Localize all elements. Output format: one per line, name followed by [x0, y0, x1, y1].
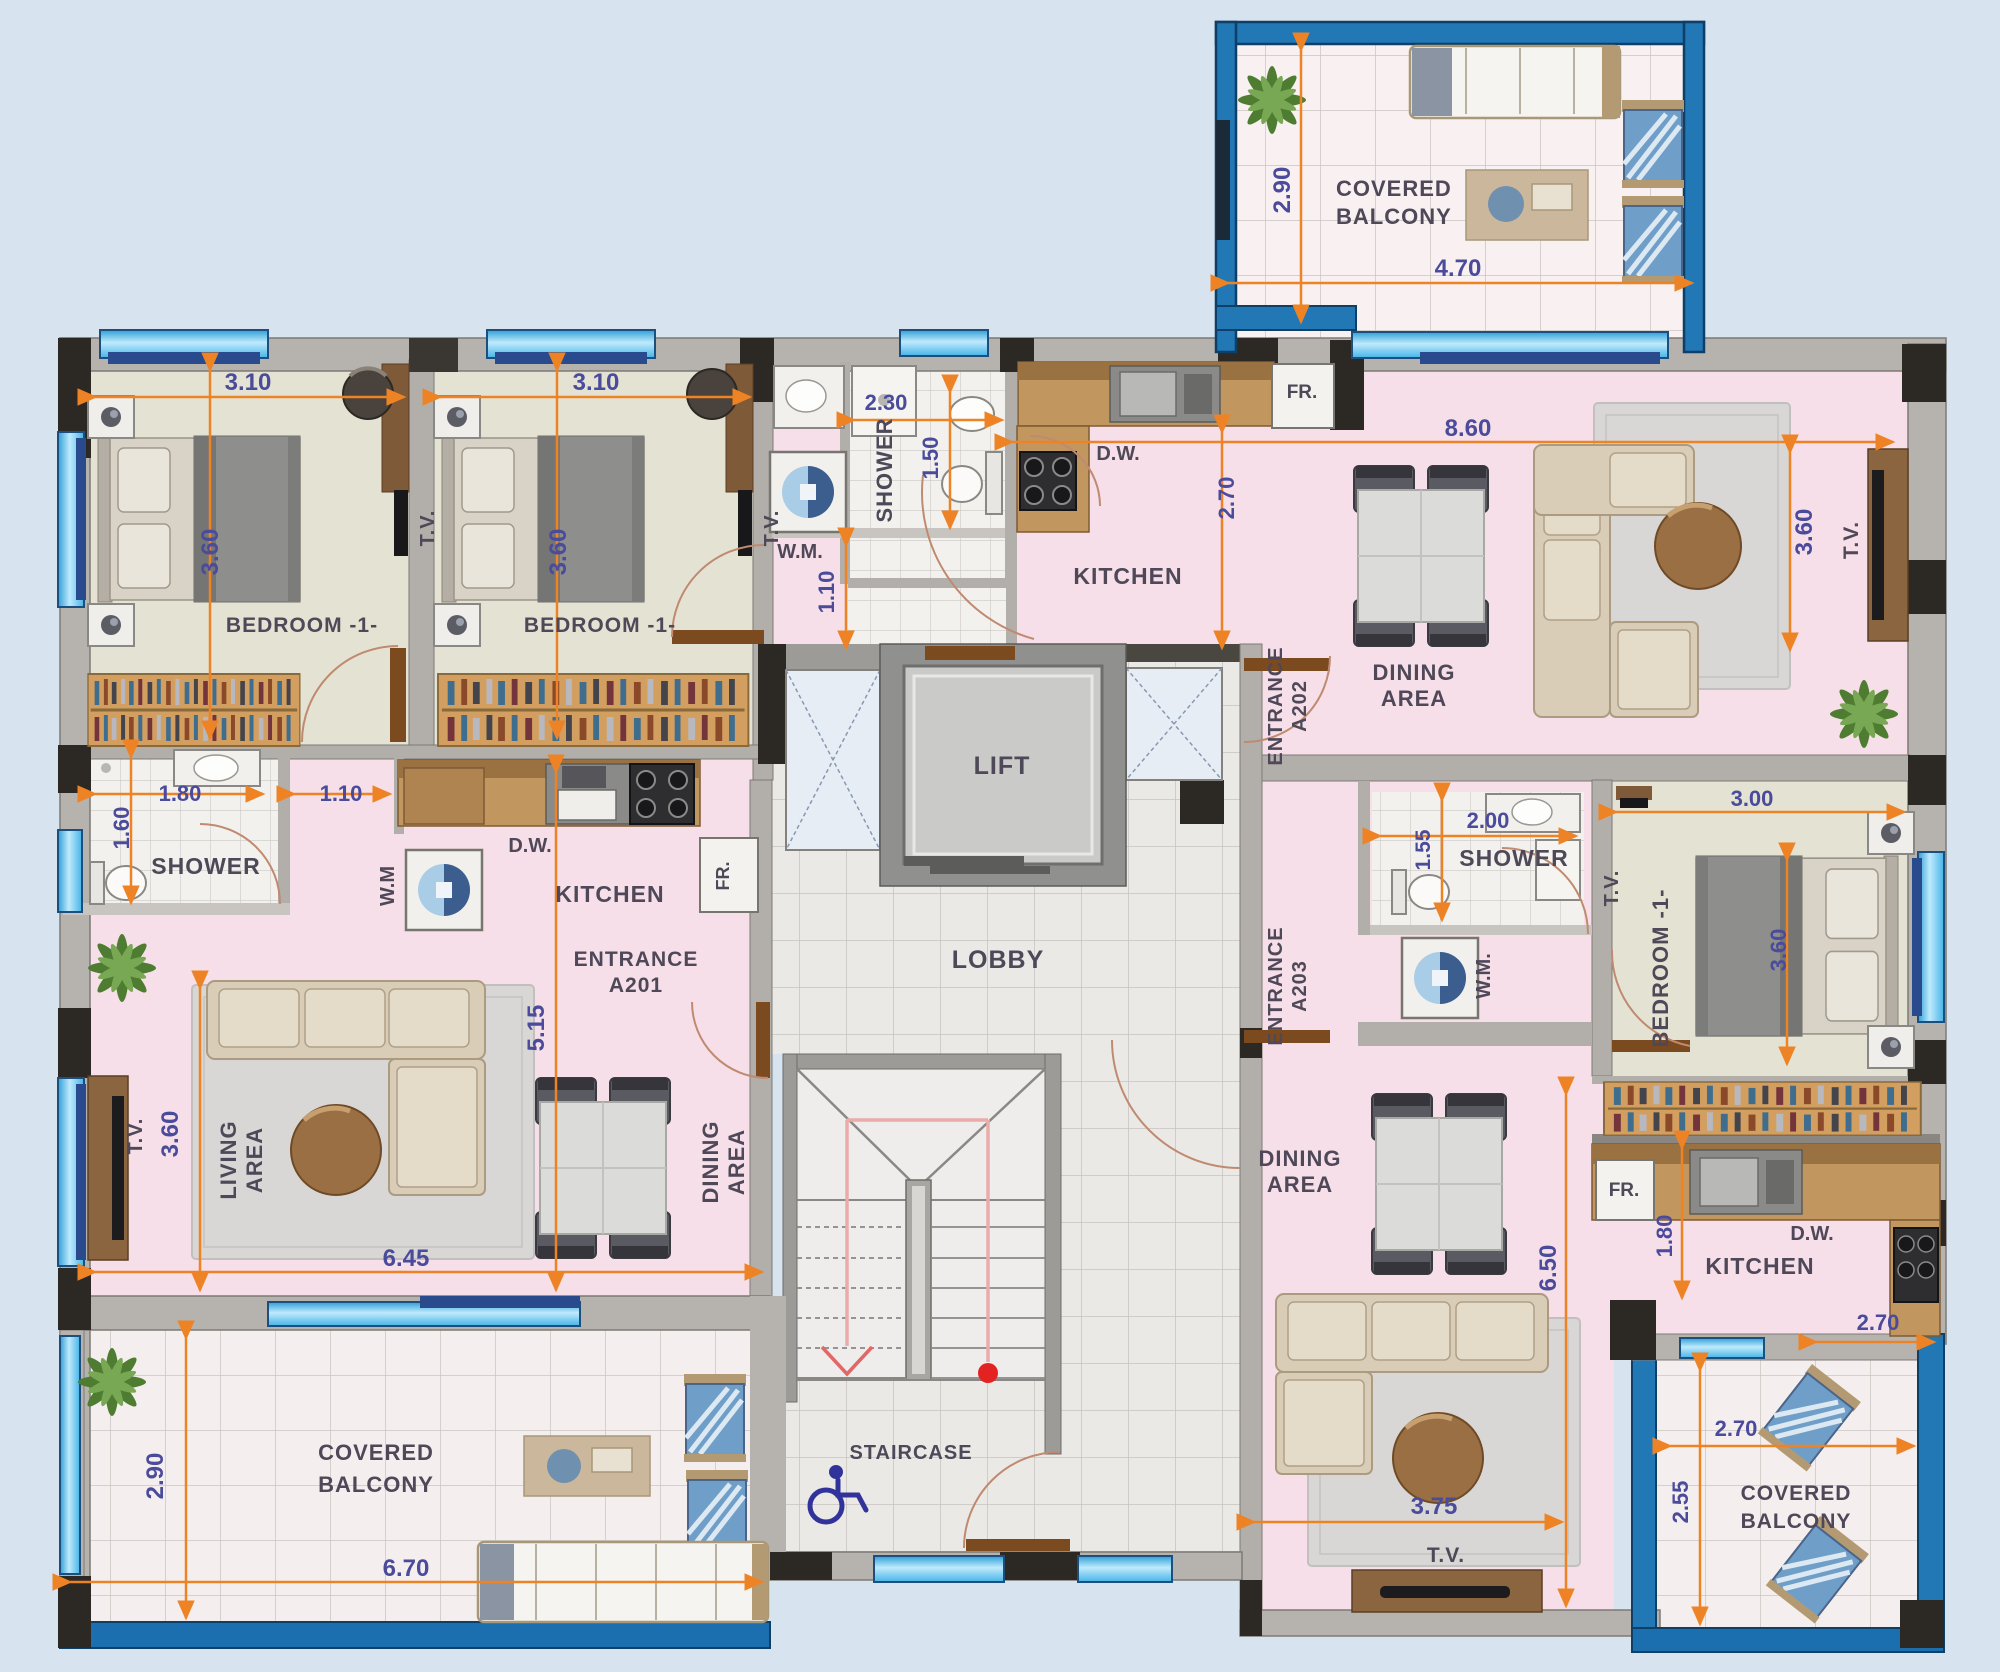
svg-text:FR.: FR.	[1609, 1180, 1640, 1201]
svg-text:KITCHEN: KITCHEN	[1073, 563, 1182, 589]
svg-text:2.70: 2.70	[1214, 477, 1239, 520]
svg-text:T.V.: T.V.	[1840, 521, 1863, 559]
svg-text:COVERED: COVERED	[1741, 1482, 1852, 1505]
svg-text:AREA: AREA	[242, 1127, 267, 1193]
svg-text:2.70: 2.70	[1715, 1416, 1758, 1441]
svg-text:LOBBY: LOBBY	[952, 946, 1045, 974]
svg-text:1.55: 1.55	[1412, 829, 1435, 870]
svg-text:AREA: AREA	[1381, 686, 1447, 711]
svg-text:LIVING: LIVING	[216, 1120, 241, 1199]
svg-text:ENTRANCE: ENTRANCE	[1265, 926, 1287, 1045]
svg-text:6.45: 6.45	[383, 1245, 430, 1272]
svg-text:1.10: 1.10	[320, 781, 363, 806]
svg-text:3.10: 3.10	[573, 369, 620, 396]
svg-text:8.60: 8.60	[1445, 415, 1492, 442]
svg-text:T.V.: T.V.	[1427, 1544, 1465, 1567]
svg-text:AREA: AREA	[724, 1129, 749, 1195]
svg-text:LIFT: LIFT	[974, 752, 1031, 780]
svg-text:BEDROOM -1-: BEDROOM -1-	[1648, 889, 1673, 1048]
svg-text:6.50: 6.50	[1535, 1245, 1562, 1292]
svg-text:DINING: DINING	[1259, 1146, 1342, 1171]
svg-text:T.V.: T.V.	[1601, 870, 1623, 907]
svg-text:W.M.: W.M.	[1473, 953, 1495, 999]
svg-text:BALCONY: BALCONY	[318, 1472, 434, 1497]
svg-text:SHOWER: SHOWER	[151, 853, 261, 879]
svg-text:W.M.: W.M.	[777, 541, 823, 563]
svg-text:COVERED: COVERED	[318, 1440, 434, 1465]
svg-text:D.W.: D.W.	[1096, 443, 1139, 465]
svg-text:A202: A202	[1289, 680, 1311, 732]
svg-text:STAIRCASE: STAIRCASE	[849, 1442, 972, 1464]
svg-text:2.90: 2.90	[142, 1453, 169, 1500]
svg-text:A203: A203	[1289, 960, 1311, 1012]
svg-text:5.15: 5.15	[523, 1005, 550, 1052]
svg-text:BALCONY: BALCONY	[1741, 1510, 1852, 1533]
svg-text:D.W.: D.W.	[508, 835, 551, 857]
svg-text:T.V.: T.V.	[417, 510, 439, 547]
svg-text:2.90: 2.90	[1269, 167, 1296, 214]
svg-text:BEDROOM -1-: BEDROOM -1-	[524, 614, 676, 637]
svg-text:BEDROOM -1-: BEDROOM -1-	[226, 614, 378, 637]
svg-text:SHOWER: SHOWER	[872, 418, 897, 523]
svg-text:3.00: 3.00	[1731, 786, 1774, 811]
svg-text:A201: A201	[609, 974, 663, 997]
svg-text:ENTRANCE: ENTRANCE	[574, 948, 699, 971]
svg-text:BALCONY: BALCONY	[1336, 204, 1452, 229]
svg-text:1.80: 1.80	[1652, 1215, 1677, 1258]
svg-text:KITCHEN: KITCHEN	[1705, 1253, 1814, 1279]
svg-text:3.60: 3.60	[197, 529, 224, 576]
svg-text:6.70: 6.70	[383, 1555, 430, 1582]
svg-text:3.60: 3.60	[1766, 929, 1791, 972]
svg-text:ENTRANCE: ENTRANCE	[1265, 646, 1287, 765]
svg-text:2.00: 2.00	[1467, 808, 1510, 833]
svg-text:3.60: 3.60	[545, 529, 572, 576]
svg-text:COVERED: COVERED	[1336, 176, 1452, 201]
svg-text:1.10: 1.10	[814, 571, 839, 614]
svg-text:DINING: DINING	[1373, 660, 1456, 685]
svg-text:SHOWER: SHOWER	[1459, 845, 1569, 871]
svg-text:AREA: AREA	[1267, 1172, 1333, 1197]
svg-text:1.60: 1.60	[109, 807, 134, 850]
svg-text:1.50: 1.50	[918, 437, 943, 480]
svg-text:1.80: 1.80	[159, 781, 202, 806]
svg-text:T.V.: T.V.	[761, 510, 783, 547]
svg-text:D.W.: D.W.	[1790, 1223, 1833, 1245]
svg-text:2.55: 2.55	[1668, 1481, 1693, 1524]
svg-text:3.75: 3.75	[1411, 1493, 1458, 1520]
svg-text:W.M: W.M	[377, 866, 399, 906]
svg-text:T.V.: T.V.	[125, 1118, 147, 1155]
svg-text:FR.: FR.	[713, 862, 733, 891]
svg-text:2.70: 2.70	[1857, 1310, 1900, 1335]
svg-text:KITCHEN: KITCHEN	[555, 881, 664, 907]
svg-text:3.60: 3.60	[1791, 509, 1818, 556]
svg-text:2.30: 2.30	[865, 390, 908, 415]
svg-text:DINING: DINING	[698, 1121, 723, 1204]
svg-text:FR.: FR.	[1287, 382, 1318, 403]
svg-text:4.70: 4.70	[1435, 255, 1482, 282]
svg-text:3.10: 3.10	[225, 369, 272, 396]
svg-text:3.60: 3.60	[157, 1111, 184, 1158]
